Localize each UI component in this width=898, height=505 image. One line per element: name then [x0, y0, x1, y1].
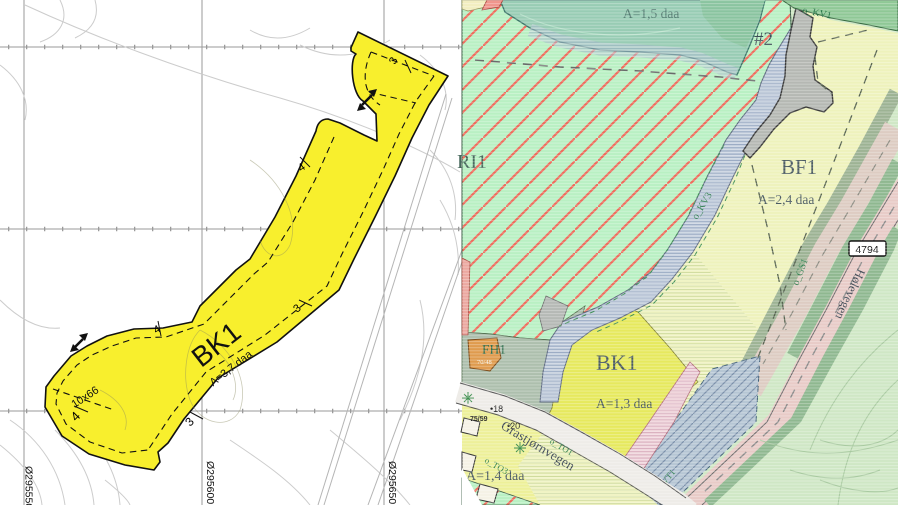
svg-text:Ø295650: Ø295650 [386, 461, 398, 504]
svg-text:Ø295550: Ø295550 [23, 466, 35, 505]
svg-text:Ø295600: Ø295600 [204, 461, 216, 504]
